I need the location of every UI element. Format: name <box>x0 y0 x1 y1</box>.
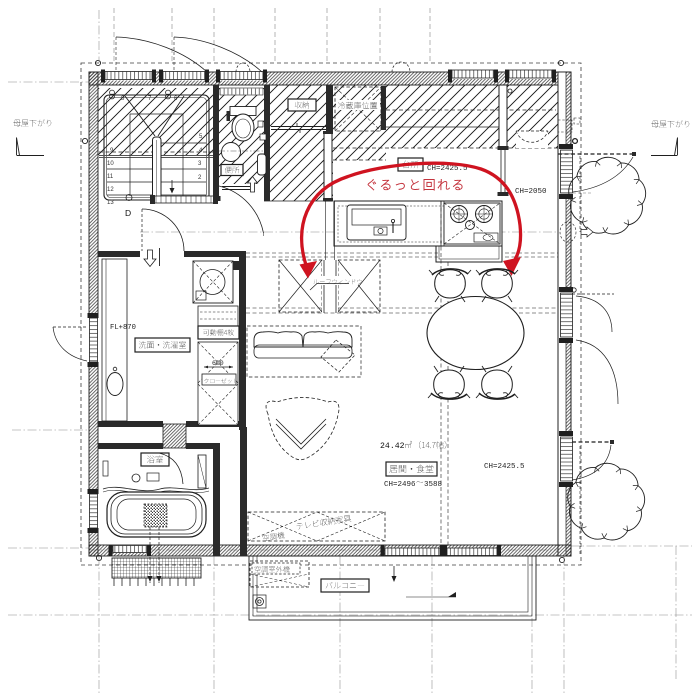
svg-text:600: 600 <box>212 360 224 367</box>
svg-text:FL+870: FL+870 <box>110 324 136 332</box>
svg-text:24.42: 24.42 <box>380 442 405 451</box>
svg-text:CH=2050: CH=2050 <box>515 188 547 196</box>
svg-text:12: 12 <box>107 187 114 193</box>
svg-text:13: 13 <box>107 200 114 206</box>
svg-text:10: 10 <box>107 161 114 167</box>
svg-text:CH=2496: CH=2496 <box>384 481 416 489</box>
svg-text:11: 11 <box>107 174 114 180</box>
svg-text:CH=2425.5: CH=2425.5 <box>484 463 525 471</box>
svg-text:D: D <box>125 208 131 218</box>
svg-text:3588: 3588 <box>424 481 442 489</box>
